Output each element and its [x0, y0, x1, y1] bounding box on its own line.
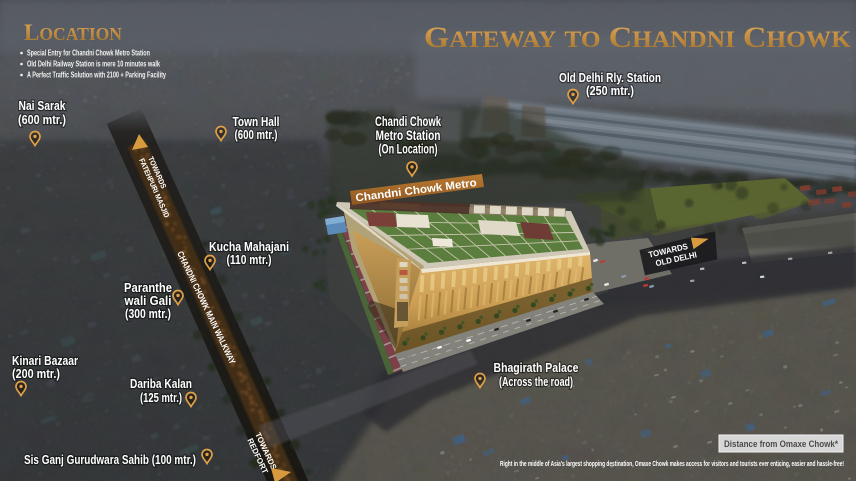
svg-text:Town Hall: Town Hall: [233, 115, 280, 129]
svg-text:A Perfect Traffic Solution wit: A Perfect Traffic Solution with 2100 + P…: [27, 71, 166, 80]
svg-text:Chandi Chowk: Chandi Chowk: [375, 114, 441, 129]
svg-text:Special Entry for Chandni Chow: Special Entry for Chandni Chowk Metro St…: [27, 49, 150, 58]
svg-text:Old Delhi Rly. Station: Old Delhi Rly. Station: [559, 71, 661, 85]
svg-text:Kucha Mahajani: Kucha Mahajani: [209, 240, 289, 254]
svg-text:(125 mtr.): (125 mtr.): [140, 391, 182, 405]
svg-text:(110 mtr.): (110 mtr.): [227, 253, 272, 267]
svg-text:Bhagirath Palace: Bhagirath Palace: [494, 361, 579, 375]
svg-text:Nai Sarak: Nai Sarak: [19, 99, 66, 113]
svg-text:LOCATION: LOCATION: [24, 20, 122, 45]
svg-text:Dariba Kalan: Dariba Kalan: [130, 377, 192, 391]
svg-text:(600 mtr.): (600 mtr.): [18, 113, 66, 127]
svg-text:Right in the middle of Asia's: Right in the middle of Asia's largest sh…: [500, 461, 844, 468]
svg-text:(200 mtr.): (200 mtr.): [12, 367, 60, 381]
svg-text:Kinari Bazaar: Kinari Bazaar: [12, 354, 78, 368]
svg-text:Distance from Omaxe Chowk*: Distance from Omaxe Chowk*: [724, 439, 838, 449]
svg-text:(On Location): (On Location): [379, 142, 438, 157]
svg-text:(600 mtr.): (600 mtr.): [235, 128, 278, 142]
svg-text:Paranthe: Paranthe: [124, 281, 172, 295]
svg-text:Old Delhi Railway Station is m: Old Delhi Railway Station is mere 10 min…: [27, 60, 160, 69]
svg-text:(Across the road): (Across the road): [499, 375, 573, 389]
svg-text:(300 mtr.): (300 mtr.): [125, 307, 171, 321]
svg-text:wali Gali: wali Gali: [124, 294, 172, 308]
svg-text:(250 mtr.): (250 mtr.): [586, 84, 634, 98]
svg-text:Sis Ganj Gurudwara Sahib (100: Sis Ganj Gurudwara Sahib (100 mtr.): [24, 453, 196, 467]
